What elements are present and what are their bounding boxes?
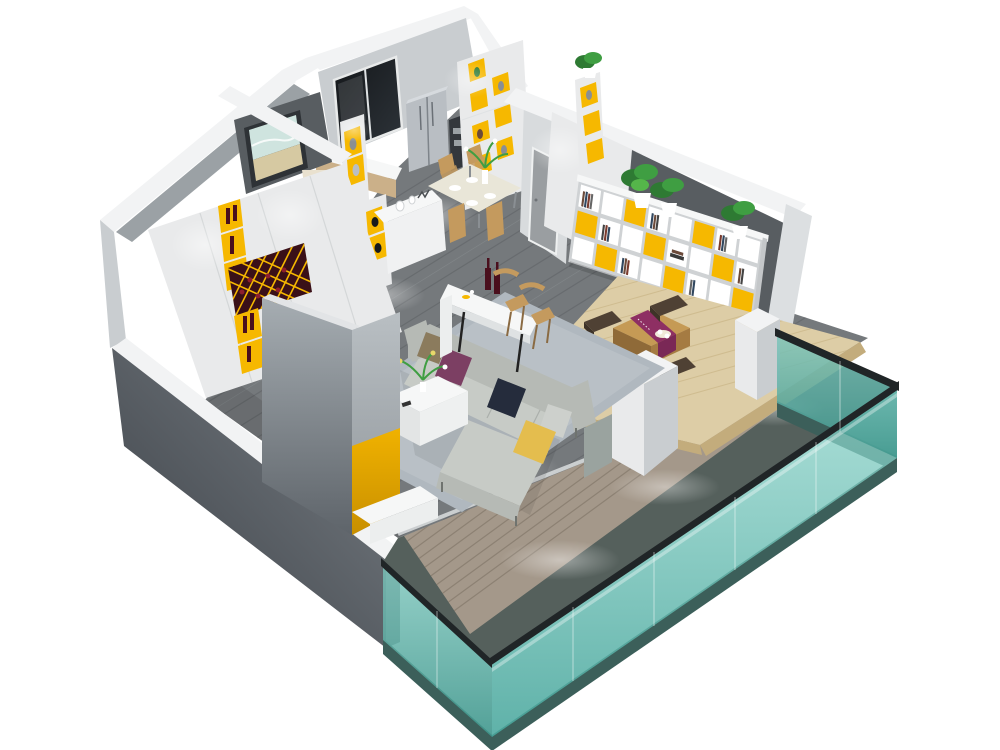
- render-canvas: [0, 0, 1000, 750]
- oven-window: [453, 128, 461, 134]
- knee-wall-pier: [735, 308, 780, 400]
- place-setting: [449, 185, 461, 191]
- apartment-3d-render: [0, 0, 1000, 750]
- place-setting: [466, 177, 478, 183]
- deck-light-pool: [500, 540, 620, 580]
- place-setting: [484, 193, 496, 199]
- outer-wall-sliver: [100, 220, 126, 348]
- niche-vase: [477, 129, 483, 139]
- place-setting: [466, 200, 478, 206]
- small-dish: [462, 295, 470, 299]
- wine-bottle: [485, 268, 491, 290]
- tea-cup: [658, 330, 663, 335]
- spotlight-glow: [256, 189, 324, 241]
- oven-window: [454, 140, 462, 146]
- tea-cup: [665, 334, 670, 339]
- spotlight-glow: [444, 62, 496, 98]
- door-knob: [535, 199, 538, 202]
- niche-vase: [498, 81, 504, 91]
- glass-cup: [470, 290, 474, 294]
- deck-light-pool: [610, 469, 720, 505]
- fridge-handle: [432, 102, 433, 126]
- fridge-handle: [420, 106, 421, 130]
- dining-chair: [448, 203, 466, 243]
- dining-chair: [486, 201, 504, 241]
- bar-counter-panel: [440, 295, 452, 358]
